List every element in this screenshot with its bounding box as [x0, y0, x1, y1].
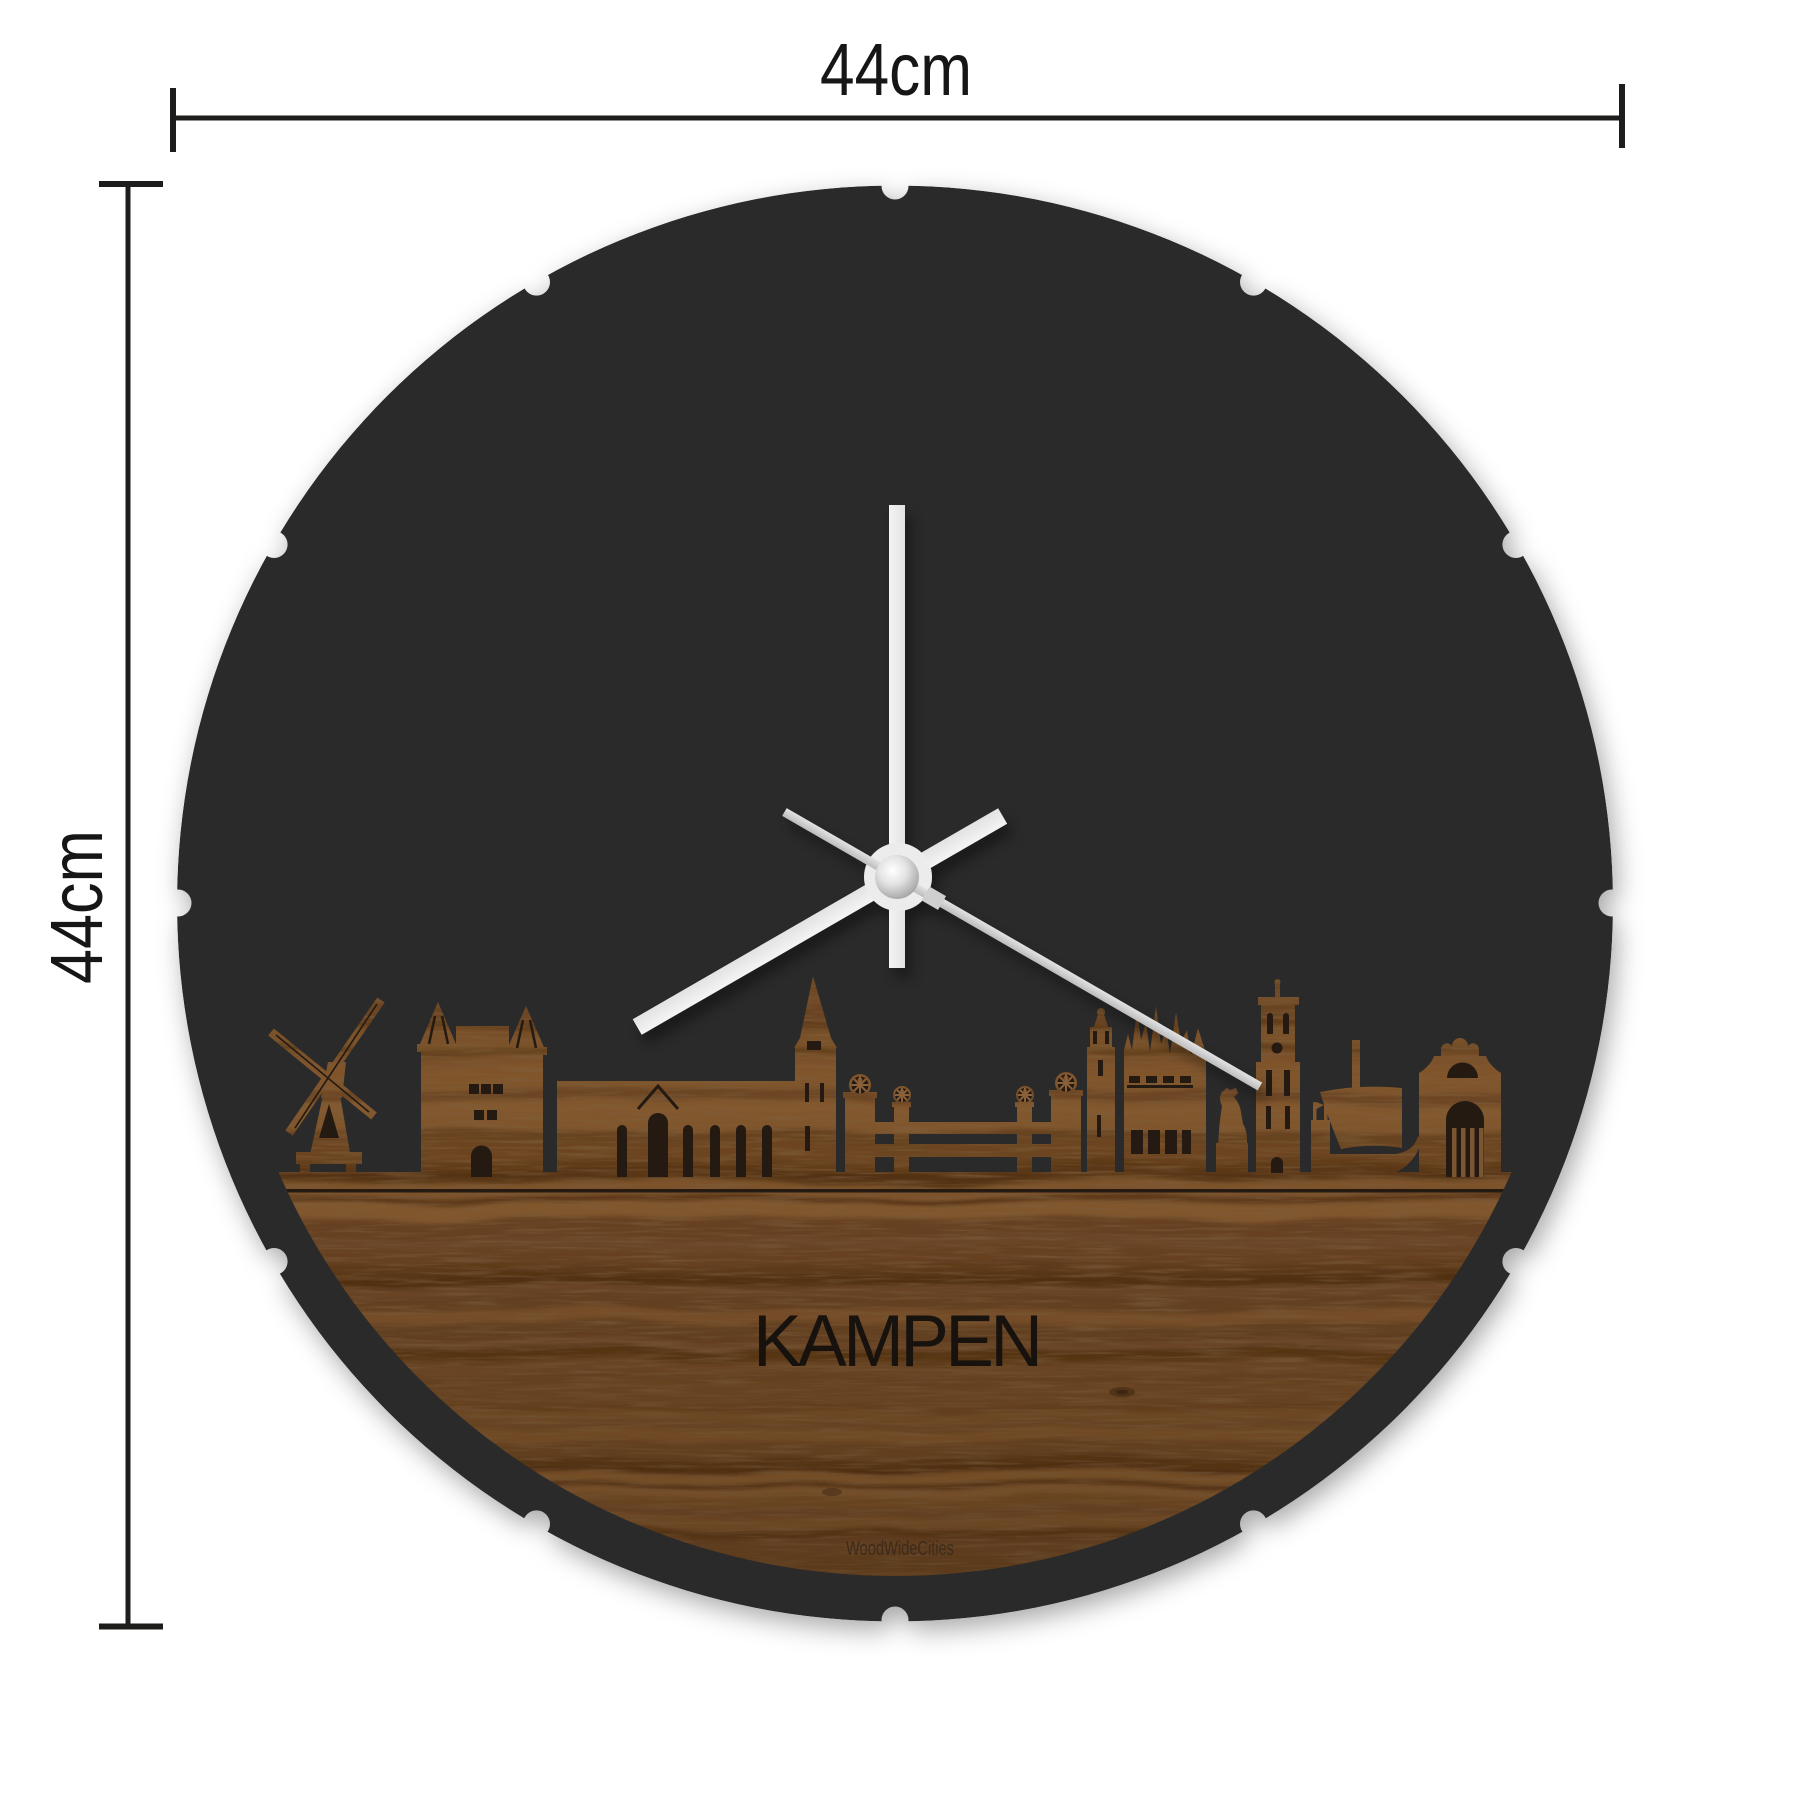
svg-text:44cm: 44cm — [35, 830, 118, 984]
svg-text:KAMPEN: KAMPEN — [753, 1301, 1043, 1382]
svg-text:WoodWideCities: WoodWideCities — [846, 1538, 954, 1560]
svg-text:44cm: 44cm — [820, 28, 972, 111]
